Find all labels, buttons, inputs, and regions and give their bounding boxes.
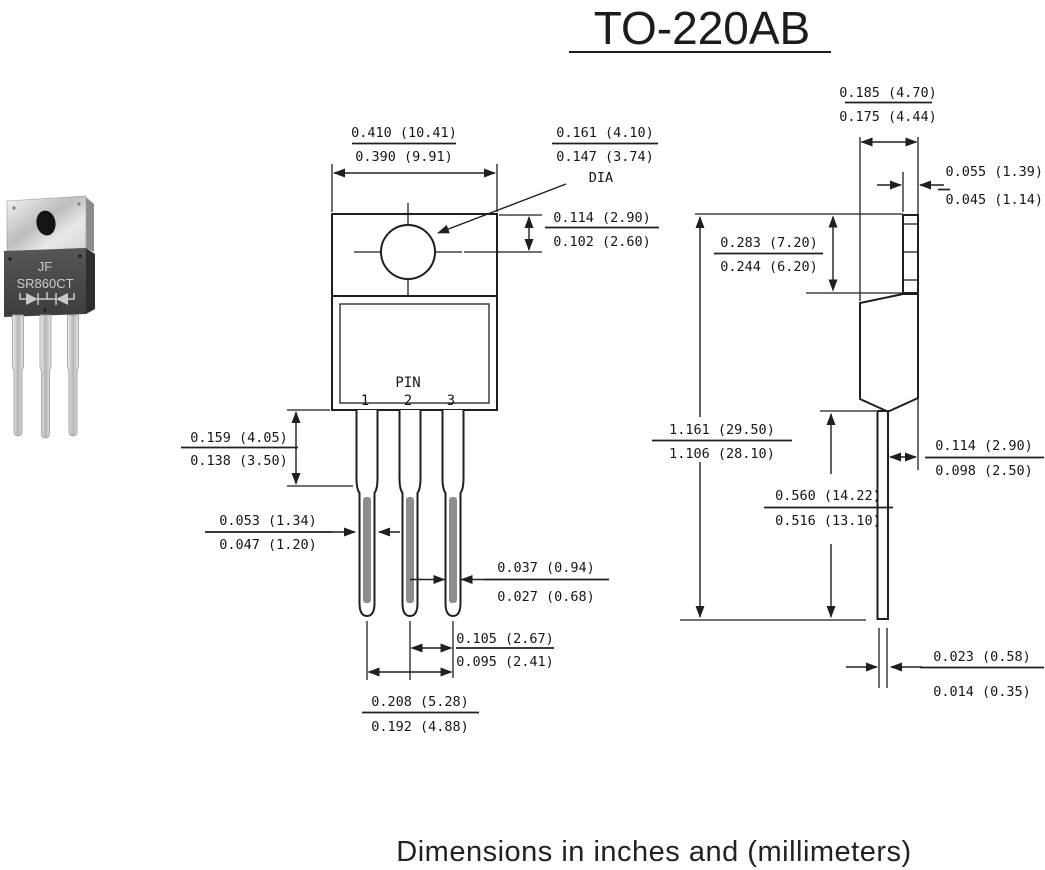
to220-dimension-drawing: TO-220AB JF SR860CT — [0, 0, 1045, 870]
hole-leader-line — [438, 184, 566, 233]
photo-body-side — [86, 248, 95, 314]
dim-lead-span-min: 0.192 (4.88) — [371, 719, 469, 735]
photo-body-dot-right — [78, 254, 81, 257]
dim-hole-dia-suffix: DIA — [589, 170, 613, 186]
dim-hole-dia-max: 0.161 (4.10) — [556, 125, 654, 141]
photo-pin-1 — [13, 315, 24, 436]
front-pin-2-shading — [406, 497, 414, 603]
pin-label: PIN — [395, 375, 420, 391]
front-body-outline — [332, 296, 497, 410]
dim-tab-height-max: 0.283 (7.20) — [720, 235, 818, 251]
dim-lead-pitch-max: 0.105 (2.67) — [456, 631, 554, 647]
dim-tab-depth-min: 0.175 (4.44) — [839, 109, 937, 125]
dim-tab-height: 0.283 (7.20) 0.244 (6.20) — [695, 214, 903, 293]
dim-lead-pitch: 0.105 (2.67) 0.095 (2.41) — [410, 621, 554, 680]
dim-hole-dia-min: 0.147 (3.74) — [556, 149, 654, 165]
side-view: 0.185 (4.70) 0.175 (4.44) 0.055 (1.39) 0… — [652, 85, 1044, 700]
dim-tab-thickness-min: 0.045 (1.14) — [945, 192, 1043, 208]
units-caption: Dimensions in inches and (millimeters) — [396, 836, 911, 868]
front-mounting-hole — [381, 225, 435, 279]
dim-hole-center-max: 0.114 (2.90) — [553, 210, 651, 226]
dim-overall-height-min: 1.106 (28.10) — [669, 446, 775, 462]
side-body-outline — [860, 294, 918, 411]
dim-lead-shoulder: 0.159 (4.05) 0.138 (3.50) — [181, 410, 353, 486]
dim-body-offset: 0.114 (2.90) 0.098 (2.50) — [890, 398, 1044, 479]
dim-tab-depth: 0.185 (4.70) 0.175 (4.44) — [839, 85, 937, 301]
dim-lead-length: 0.560 (14.22) 0.516 (13.10) — [764, 411, 893, 617]
dim-lead-thickness: 0.023 (0.58) 0.014 (0.35) — [846, 649, 1044, 700]
dim-lead-narrow: 0.037 (0.94) 0.027 (0.68) — [410, 560, 609, 605]
photo-rivet-left — [12, 206, 15, 209]
dim-lead-span-max: 0.208 (5.28) — [371, 694, 469, 710]
photo-pin-3 — [68, 315, 79, 436]
front-view: PIN 1 2 3 0.410 (10.41) 0.390 (9.91) 0.1… — [181, 125, 659, 735]
dim-tab-depth-max: 0.185 (4.70) — [839, 85, 937, 101]
dim-lead-wide-min: 0.047 (1.20) — [219, 537, 317, 553]
dim-body-width: 0.410 (10.41) 0.390 (9.91) — [332, 125, 497, 212]
dim-lead-pitch-min: 0.095 (2.41) — [456, 654, 554, 670]
photo-rivet-right — [77, 202, 80, 205]
photo-brand-text: JF — [38, 259, 53, 274]
photo-pins — [13, 315, 79, 438]
front-pin-3-shading — [449, 497, 457, 603]
page-title: TO-220AB — [594, 2, 810, 54]
side-tab-outline — [903, 215, 918, 293]
photo-part-text: SR860CT — [16, 276, 73, 291]
pin-number-2: 2 — [404, 393, 412, 409]
dim-lead-shoulder-max: 0.159 (4.05) — [190, 430, 288, 446]
pin-number-3: 3 — [447, 393, 455, 409]
dim-lead-narrow-max: 0.037 (0.94) — [497, 560, 595, 576]
dim-body-width-max: 0.410 (10.41) — [351, 125, 457, 141]
dim-body-offset-max: 0.114 (2.90) — [935, 438, 1033, 454]
dim-body-width-min: 0.390 (9.91) — [355, 149, 453, 165]
dim-body-offset-min: 0.098 (2.50) — [935, 463, 1033, 479]
dim-lead-wide-max: 0.053 (1.34) — [219, 513, 317, 529]
front-pin-1-shading — [363, 497, 371, 603]
photo-tab-side — [86, 197, 94, 252]
dim-tab-height-min: 0.244 (6.20) — [720, 259, 818, 275]
package-photo: JF SR860CT — [4, 196, 95, 438]
front-pins — [357, 410, 464, 616]
dim-tab-thickness: 0.055 (1.39) 0.045 (1.14) — [877, 164, 1043, 212]
dim-lead-thickness-min: 0.014 (0.35) — [933, 684, 1031, 700]
dim-overall-height: 1.161 (29.50) 1.106 (28.10) — [652, 217, 866, 620]
dim-lead-length-max: 0.560 (14.22) — [775, 488, 881, 504]
title-block: TO-220AB — [570, 2, 830, 54]
pin-number-1: 1 — [361, 393, 369, 409]
dim-lead-shoulder-min: 0.138 (3.50) — [190, 453, 288, 469]
dim-lead-thickness-max: 0.023 (0.58) — [933, 649, 1031, 665]
dim-lead-narrow-min: 0.027 (0.68) — [497, 589, 595, 605]
photo-body-dot-left — [8, 257, 11, 260]
photo-pin-2 — [40, 315, 51, 438]
datasheet-page: TO-220AB JF SR860CT — [0, 0, 1045, 870]
photo-body-dot-bottom — [43, 308, 46, 311]
dim-tab-thickness-max: 0.055 (1.39) — [945, 164, 1043, 180]
dim-overall-height-max: 1.161 (29.50) — [669, 422, 775, 438]
dim-lead-length-min: 0.516 (13.10) — [775, 513, 881, 529]
dim-hole-center-min: 0.102 (2.60) — [553, 234, 651, 250]
